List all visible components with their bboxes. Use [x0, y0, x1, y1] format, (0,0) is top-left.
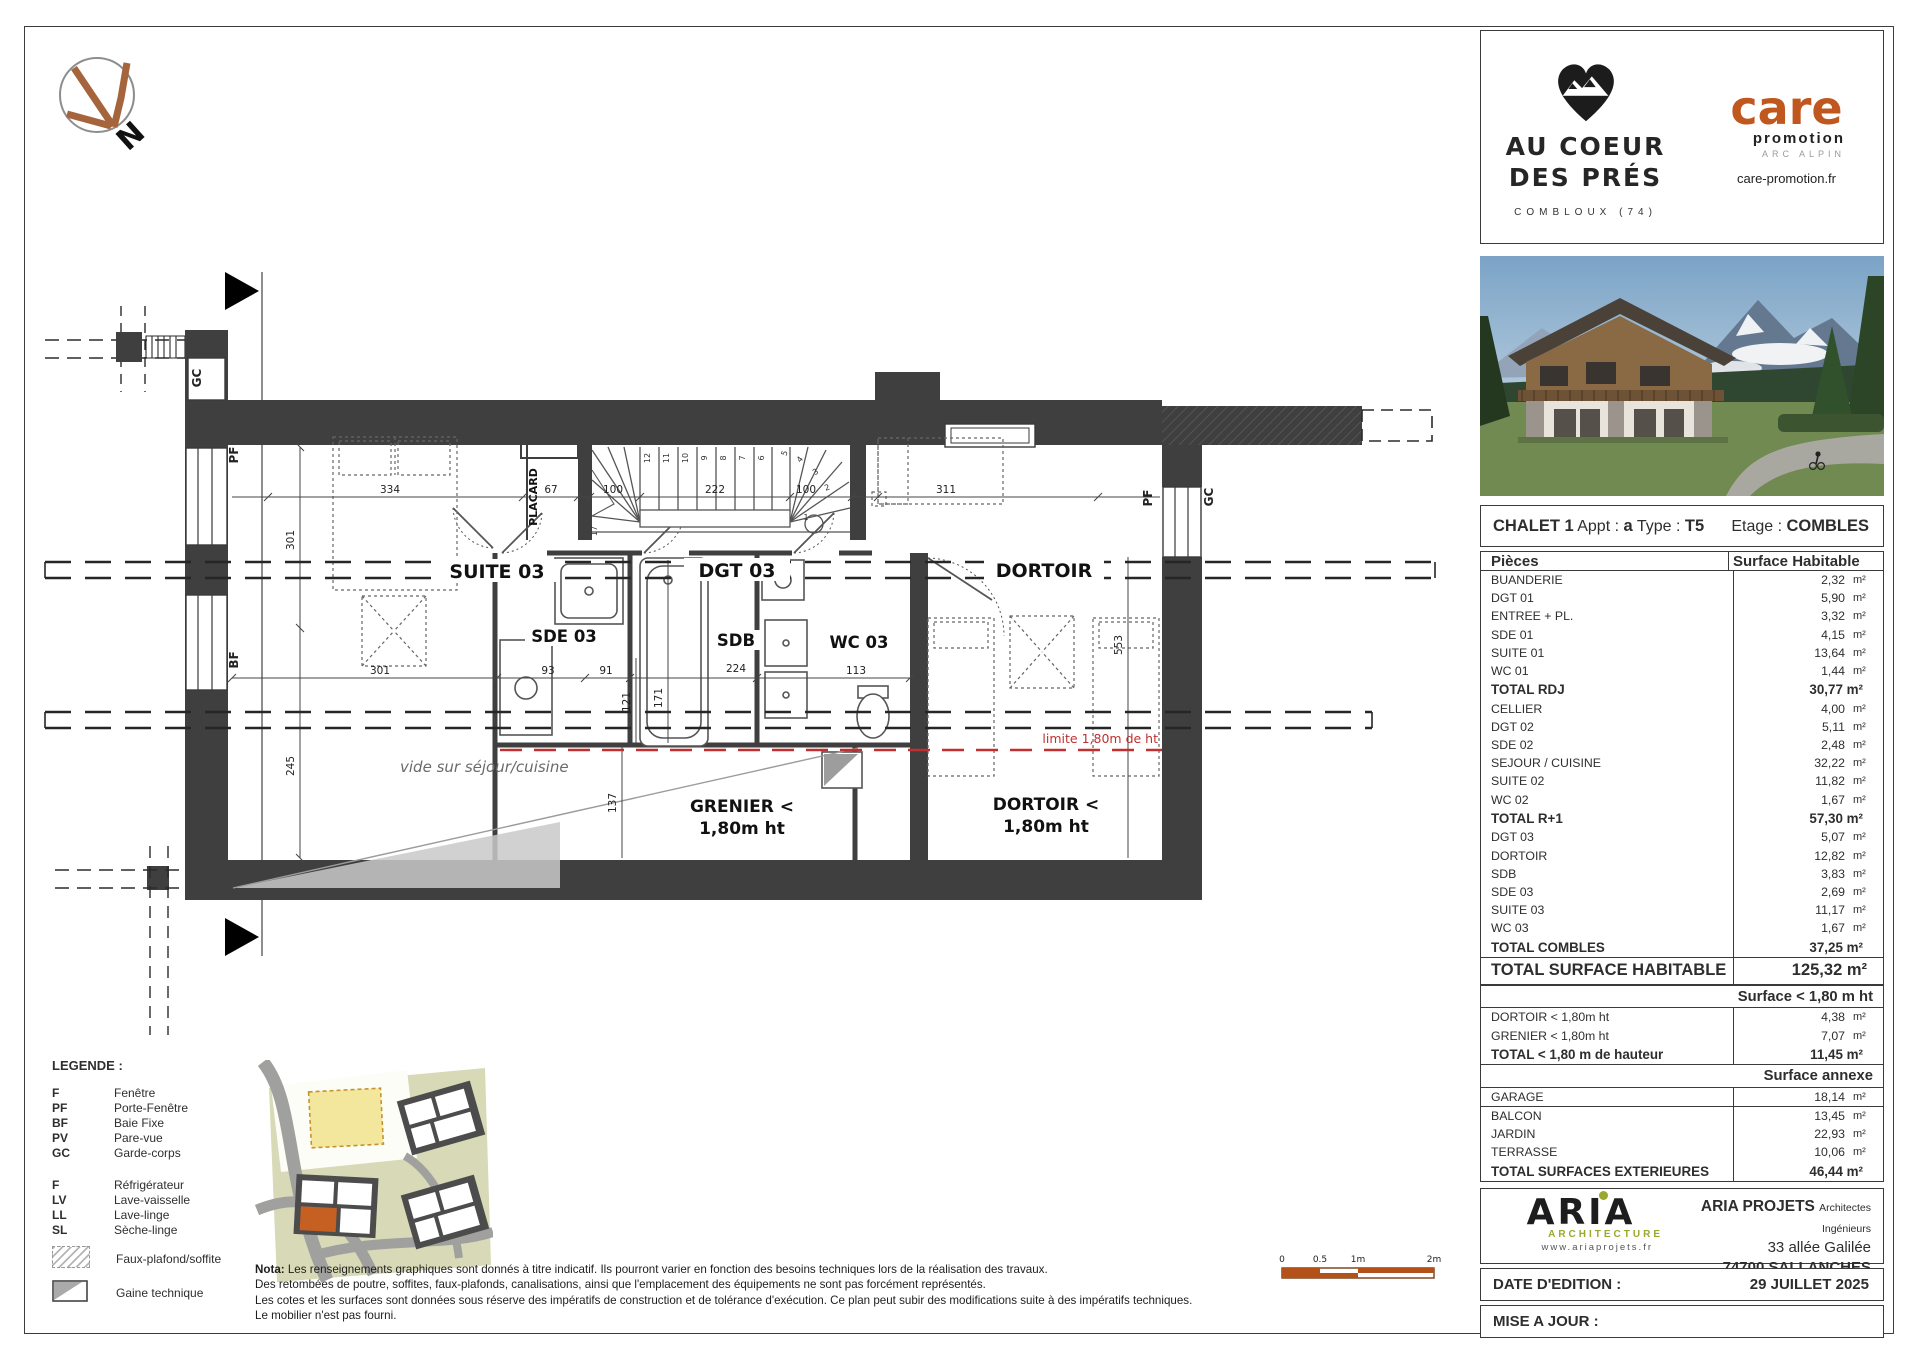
table-row: DGT 035,07m² — [1481, 828, 1883, 846]
stair-step-number: 8 — [719, 455, 728, 460]
svg-text:91: 91 — [599, 665, 612, 677]
svg-text:GC: GC — [190, 368, 204, 387]
legend-title: LEGENDE : — [52, 1058, 252, 1073]
legend: LEGENDE : FFenêtrePFPorte-FenêtreBFBaie … — [52, 1058, 252, 1306]
architect-box: ARIA ARCHITECTURE www.ariaprojets.fr ARI… — [1480, 1188, 1884, 1264]
table-row: JARDIN22,93m² — [1481, 1125, 1883, 1143]
table-row: BUANDERIE2,32m² — [1481, 571, 1883, 589]
svg-text:121: 121 — [621, 692, 633, 712]
promoter-branding: care promotion ARC ALPIN care-promotion.… — [1690, 88, 1883, 185]
vide-label: vide sur séjour/cuisine — [400, 758, 569, 776]
table-row: SDB3,83m² — [1481, 865, 1883, 883]
nota-line: Le mobilier n'est pas fourni. — [255, 1308, 1265, 1323]
legend-item: FRéfrigérateur — [52, 1177, 252, 1192]
table-row: TOTAL COMBLES37,25 m² — [1481, 937, 1883, 957]
scale-bar: 0 0.5 1m 2m — [1276, 1252, 1446, 1292]
room-label-suite-03: SUITE 03 — [449, 561, 544, 583]
apartment-header: CHALET 1 Appt : a Type : T5 Etage : COMB… — [1480, 505, 1884, 547]
table-row: TOTAL RDJ30,77 m² — [1481, 680, 1883, 700]
site-building-current — [293, 1174, 378, 1238]
table-section-header: Surface annexe — [1481, 1064, 1883, 1088]
care-promotion-label: promotion — [1690, 130, 1883, 147]
legend-symbol-label: Faux-plafond/soffite — [116, 1252, 221, 1266]
care-logo: care — [1690, 88, 1883, 129]
room-label-wc-03: WC 03 — [829, 633, 888, 652]
stair-step-number: 2 — [823, 483, 831, 493]
table-row: GARAGE18,14m² — [1481, 1088, 1883, 1107]
nota-block: Nota: Les renseignements graphiques sont… — [255, 1262, 1265, 1323]
stair-step-number: 1 — [803, 513, 808, 522]
svg-text:0: 0 — [1279, 1255, 1285, 1265]
room-label-sde-03: SDE 03 — [531, 627, 597, 646]
edition-date-label: DATE D'EDITION : — [1481, 1276, 1750, 1293]
legend-item: SLSèche-linge — [52, 1223, 252, 1238]
gaine-swatch-icon — [52, 1280, 88, 1302]
table-row: TOTAL SURFACES EXTERIEURES46,44 m² — [1481, 1162, 1883, 1182]
floor-plan-sheet: { "colors": { "accent_orange": "#b5521c"… — [0, 0, 1920, 1357]
edition-date-box: DATE D'EDITION : 29 JUILLET 2025 — [1480, 1268, 1884, 1301]
table-row: DORTOIR12,82m² — [1481, 846, 1883, 864]
svg-text:BF: BF — [227, 651, 241, 668]
stair-step-number: 11 — [662, 453, 671, 463]
table-row: SUITE 0311,17m² — [1481, 901, 1883, 919]
heart-mountain-logo-icon — [1547, 56, 1625, 126]
table-row: TOTAL R+157,30 m² — [1481, 809, 1883, 829]
svg-text:334: 334 — [380, 484, 400, 496]
svg-text:100: 100 — [603, 484, 623, 496]
stair-step-number: 10 — [681, 453, 690, 463]
legend-item: FFenêtre — [52, 1085, 252, 1100]
apartment-id: CHALET 1 Appt : a Type : T5 — [1481, 517, 1731, 536]
table-section-header: Surface < 1,80 m ht — [1481, 985, 1883, 1009]
table-row: WC 011,44m² — [1481, 662, 1883, 680]
table-row: WC 021,67m² — [1481, 791, 1883, 809]
column-surface: Surface Habitable — [1728, 552, 1883, 570]
svg-text:553: 553 — [1113, 635, 1125, 655]
table-row: WC 031,67m² — [1481, 919, 1883, 937]
svg-text:1m: 1m — [1351, 1255, 1366, 1265]
svg-text:GC: GC — [1202, 487, 1216, 506]
svg-text:PF: PF — [1141, 490, 1155, 507]
legend-symbol-faux-plafond: Faux-plafond/soffite — [52, 1246, 252, 1272]
table-row: SUITE 0211,82m² — [1481, 772, 1883, 790]
nota-line: Nota: Les renseignements graphiques sont… — [255, 1262, 1265, 1277]
hatch-swatch-icon — [52, 1246, 90, 1268]
table-row: BALCON13,45m² — [1481, 1107, 1883, 1125]
legend-item: BFBaie Fixe — [52, 1115, 252, 1130]
project-name-line2: DES PRÉS — [1481, 162, 1690, 193]
svg-text:171: 171 — [653, 688, 665, 708]
legend-appliances: FRéfrigérateurLVLave-vaisselleLLLave-lin… — [52, 1177, 252, 1238]
svg-text:113: 113 — [846, 665, 866, 677]
table-row: TOTAL SURFACE HABITABLE125,32 m² — [1481, 957, 1883, 985]
branding-box: AU COEUR DES PRÉS COMBLOUX (74) care pro… — [1480, 30, 1884, 244]
nota-line: Des retombées de poutre, soffites, faux-… — [255, 1277, 1265, 1292]
edition-date-value: 29 JUILLET 2025 — [1750, 1276, 1883, 1293]
svg-text:1,80m ht: 1,80m ht — [1003, 817, 1089, 837]
legend-item: LVLave-vaisselle — [52, 1192, 252, 1207]
chalet-photo — [1480, 256, 1884, 496]
stair-step-number: 6 — [757, 455, 766, 460]
table-row: GRENIER < 1,80m ht7,07m² — [1481, 1027, 1883, 1045]
project-location: COMBLOUX (74) — [1481, 207, 1690, 218]
legend-item: PVPare-vue — [52, 1131, 252, 1146]
stair-step-number: 5 — [780, 449, 790, 457]
height-limit-label: limite 1,80m de ht — [1042, 731, 1158, 746]
svg-text:DORTOIR <: DORTOIR < — [993, 795, 1100, 815]
stair-step-number: 7 — [738, 455, 747, 460]
table-row: ENTREE + PL.3,32m² — [1481, 607, 1883, 625]
project-name-line1: AU COEUR — [1481, 131, 1690, 162]
furniture — [333, 437, 1159, 776]
project-branding: AU COEUR DES PRÉS COMBLOUX (74) — [1481, 56, 1690, 219]
table-row: DGT 015,90m² — [1481, 589, 1883, 607]
architect-address: ARIA PROJETS Architectes Ingénieurs 33 a… — [1681, 1189, 1883, 1263]
room-label-placard: PLACARD — [527, 468, 540, 526]
svg-text:301: 301 — [285, 530, 297, 550]
stair-step-number: 17 — [590, 526, 599, 536]
room-label-dortoir: DORTOIR — [996, 560, 1093, 582]
table-row: TERRASSE10,06m² — [1481, 1143, 1883, 1161]
svg-text:137: 137 — [607, 793, 619, 813]
table-row: DORTOIR < 1,80m ht4,38m² — [1481, 1008, 1883, 1026]
svg-text:245: 245 — [285, 756, 297, 776]
svg-text:2m: 2m — [1427, 1255, 1442, 1265]
care-region-label: ARC ALPIN — [1690, 149, 1883, 159]
svg-text:0.5: 0.5 — [1313, 1255, 1327, 1265]
north-arrow-icon: N — [60, 58, 152, 158]
svg-text:311: 311 — [936, 484, 956, 496]
svg-text:67: 67 — [544, 484, 557, 496]
legend-item: PFPorte-Fenêtre — [52, 1100, 252, 1115]
surface-table-rows: BUANDERIE2,32m²DGT 015,90m²ENTREE + PL.3… — [1481, 571, 1883, 1181]
table-row: DGT 025,11m² — [1481, 718, 1883, 736]
room-label-dgt-03: DGT 03 — [698, 560, 775, 582]
site-plan-inset — [255, 1060, 493, 1288]
legend-symbol-gaine: Gaine technique — [52, 1280, 252, 1306]
legend-item: GCGarde-corps — [52, 1146, 252, 1161]
svg-text:PF: PF — [227, 447, 241, 464]
table-row: TOTAL < 1,80 m de hauteur11,45 m² — [1481, 1045, 1883, 1065]
legend-abbreviations: FFenêtrePFPorte-FenêtreBFBaie FixePVPare… — [52, 1085, 252, 1161]
aria-url[interactable]: www.ariaprojets.fr — [1481, 1242, 1681, 1253]
update-date-box: MISE A JOUR : — [1480, 1305, 1884, 1338]
stair-step-number: 3 — [811, 467, 820, 477]
table-row: SDE 014,15m² — [1481, 626, 1883, 644]
table-row: SEJOUR / CUISINE32,22m² — [1481, 754, 1883, 772]
svg-text:222: 222 — [705, 484, 725, 496]
legend-item: LLLave-linge — [52, 1207, 252, 1222]
aria-green-dot-icon — [1599, 1191, 1608, 1200]
table-row: CELLIER4,00m² — [1481, 700, 1883, 718]
wall-continuation-dashed — [1362, 410, 1432, 441]
section-cut-markers — [225, 272, 262, 956]
stair-step-number: 12 — [643, 453, 652, 463]
nota-line: Les cotes et les surfaces sont données s… — [255, 1293, 1265, 1308]
room-label-sdb: SDB — [717, 631, 755, 650]
svg-text:224: 224 — [726, 663, 746, 675]
column-pieces: Pièces — [1481, 553, 1728, 570]
svg-text:1,80m ht: 1,80m ht — [699, 819, 785, 839]
surface-table-head: Pièces Surface Habitable — [1481, 552, 1883, 571]
aria-logo: ARIA ARCHITECTURE www.ariaprojets.fr — [1481, 1189, 1681, 1263]
update-date-label: MISE A JOUR : — [1481, 1313, 1599, 1330]
table-row: SDE 032,69m² — [1481, 883, 1883, 901]
svg-text:100: 100 — [796, 484, 816, 496]
care-url[interactable]: care-promotion.fr — [1690, 171, 1883, 186]
svg-text:GRENIER <: GRENIER < — [690, 797, 794, 817]
surface-table: Pièces Surface Habitable BUANDERIE2,32m²… — [1480, 551, 1884, 1182]
stair-step-number: 9 — [700, 455, 709, 460]
svg-text:93: 93 — [541, 665, 554, 677]
apartment-floor: Etage : COMBLES — [1731, 517, 1883, 536]
svg-text:301: 301 — [370, 665, 390, 677]
legend-symbol-label: Gaine technique — [116, 1286, 203, 1300]
table-row: SDE 022,48m² — [1481, 736, 1883, 754]
table-row: SUITE 0113,64m² — [1481, 644, 1883, 662]
